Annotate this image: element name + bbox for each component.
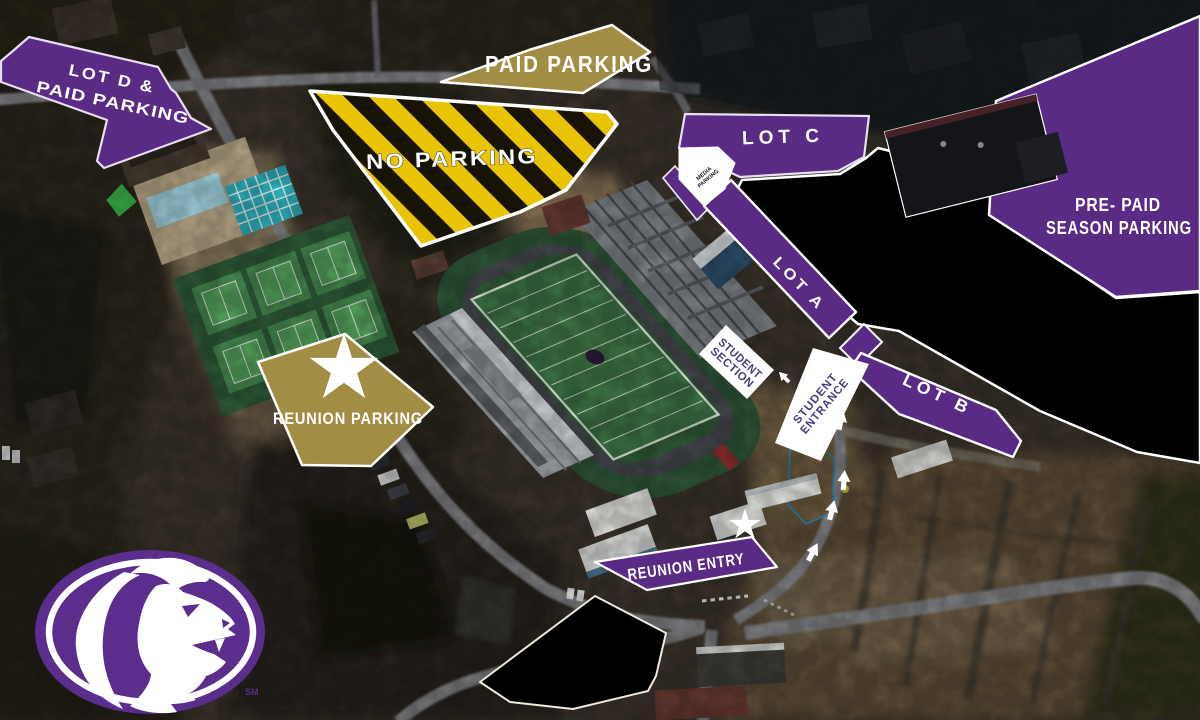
svg-text:PAID PARKING: PAID PARKING	[485, 51, 653, 77]
svg-text:SEASON PARKING: SEASON PARKING	[1046, 218, 1192, 238]
svg-text:LOT C: LOT C	[742, 126, 825, 150]
svg-text:PRE- PAID: PRE- PAID	[1075, 195, 1161, 215]
svg-text:REUNION PARKING: REUNION PARKING	[273, 409, 423, 428]
svg-text:SM: SM	[245, 687, 259, 697]
